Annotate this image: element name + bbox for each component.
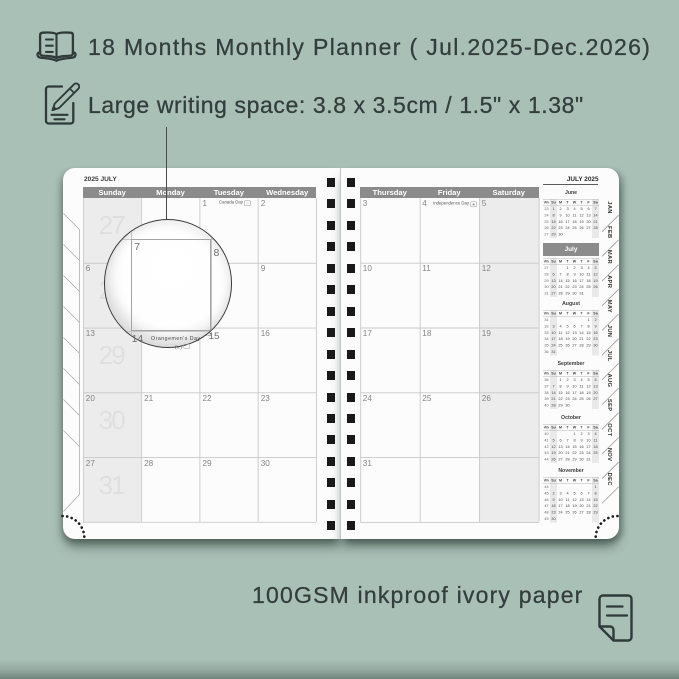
svg-text:FEB: FEB	[606, 226, 612, 239]
svg-text:OCT: OCT	[606, 423, 612, 436]
svg-text:JUL: JUL	[606, 350, 612, 362]
svg-text:DEC: DEC	[606, 473, 612, 487]
svg-text:MAY: MAY	[606, 300, 612, 313]
svg-text:APR: APR	[606, 275, 612, 289]
svg-text:NOV: NOV	[606, 448, 612, 461]
svg-text:AUG: AUG	[606, 374, 612, 388]
svg-text:MAR: MAR	[606, 250, 612, 265]
svg-text:SEP: SEP	[606, 399, 612, 412]
svg-text:JUN: JUN	[606, 325, 612, 338]
svg-text:JAN: JAN	[606, 201, 612, 214]
